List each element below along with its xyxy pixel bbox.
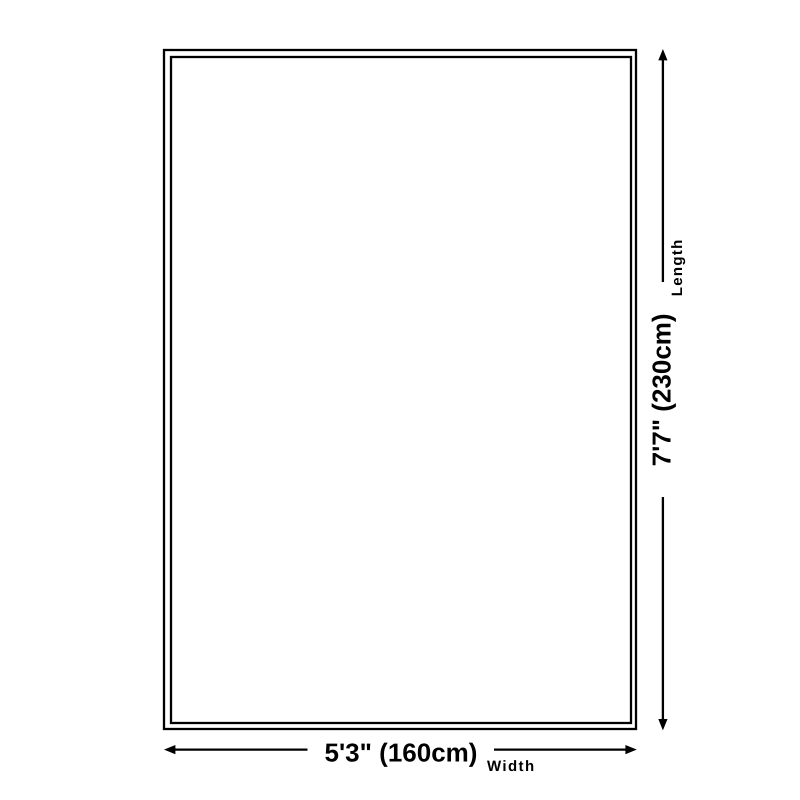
svg-text:Length: Length xyxy=(669,238,686,296)
svg-text:7'7" (230cm): 7'7" (230cm) xyxy=(647,313,677,466)
svg-text:Width: Width xyxy=(487,758,536,775)
svg-text:5'3" (160cm): 5'3" (160cm) xyxy=(325,737,478,767)
